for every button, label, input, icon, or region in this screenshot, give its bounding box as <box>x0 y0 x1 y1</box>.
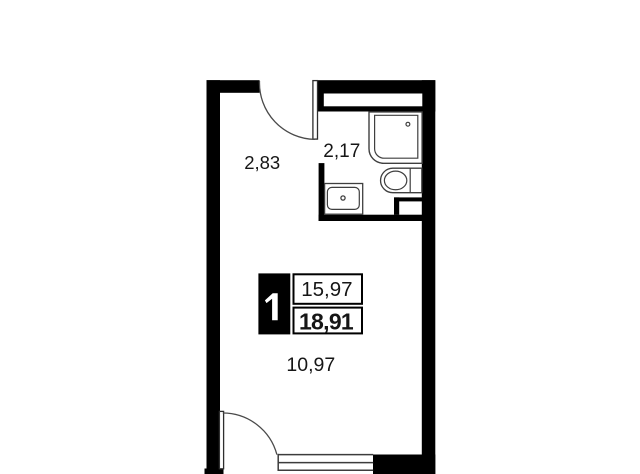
svg-text:2,83: 2,83 <box>244 152 280 173</box>
svg-text:10,97: 10,97 <box>286 354 335 376</box>
svg-text:2,17: 2,17 <box>323 141 360 162</box>
svg-text:18,91: 18,91 <box>299 308 354 334</box>
svg-text:15,97: 15,97 <box>301 278 352 301</box>
